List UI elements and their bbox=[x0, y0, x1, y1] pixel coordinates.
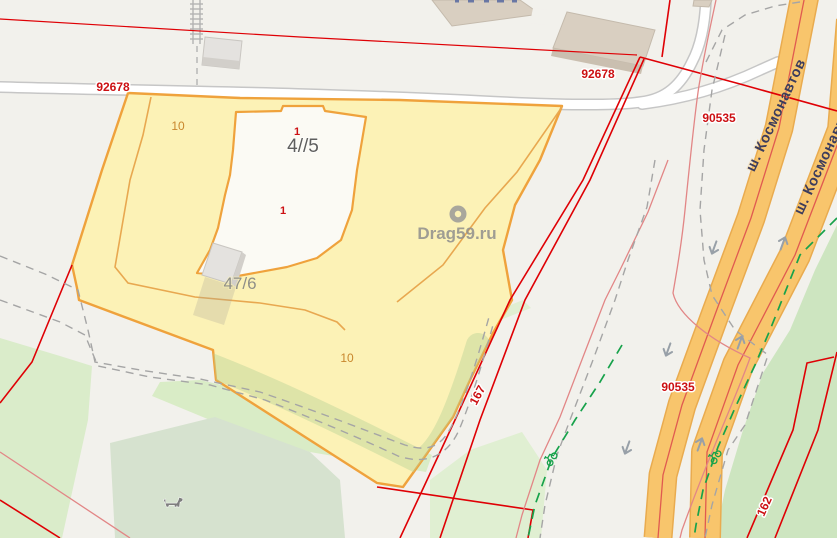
map-svg: Drag59.ru 92678 92678 90535 90535 167 16… bbox=[0, 0, 837, 538]
parcel-label-90535-top: 90535 bbox=[702, 111, 736, 125]
map-canvas[interactable]: Drag59.ru 92678 92678 90535 90535 167 16… bbox=[0, 0, 837, 538]
parcel-label-92678-top: 92678 bbox=[581, 67, 615, 81]
point-label-1-sup: 1 bbox=[294, 126, 300, 138]
parcel-label-90535-bottom: 90535 bbox=[661, 380, 695, 394]
subparcel-label-10-bottom: 10 bbox=[340, 351, 354, 365]
subparcel-label-10-top: 10 bbox=[171, 119, 185, 133]
building-label-47-6: 47/6 bbox=[223, 274, 256, 293]
parcel-label-92678-left: 92678 bbox=[96, 80, 130, 94]
building-label-47-5: 4//5 bbox=[287, 136, 319, 157]
building-top-left bbox=[202, 37, 242, 69]
watermark-text: Drag59.ru bbox=[417, 224, 496, 243]
point-label-1-main: 1 bbox=[280, 205, 286, 217]
